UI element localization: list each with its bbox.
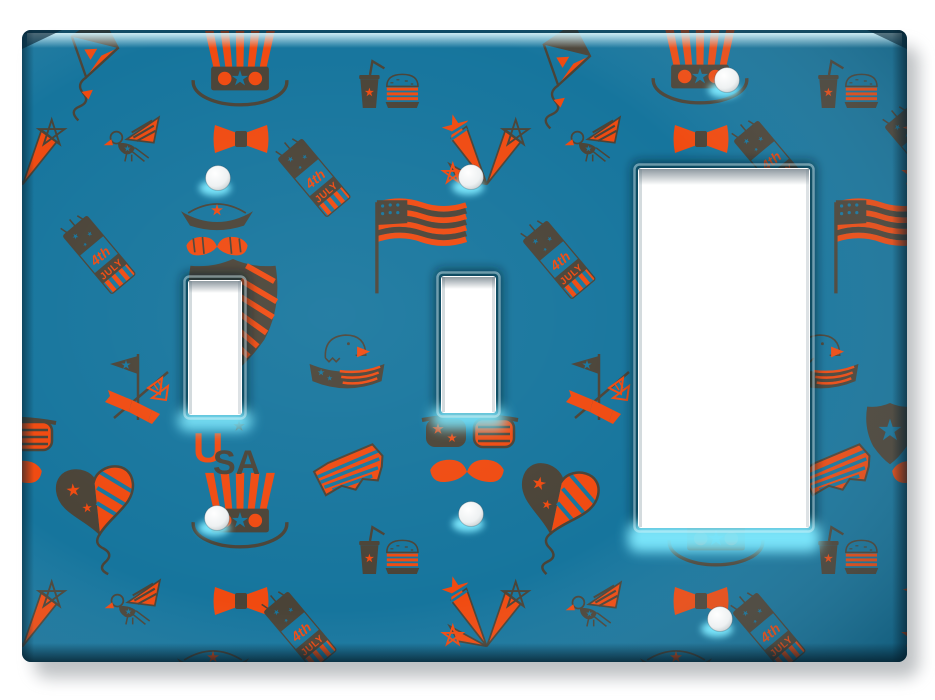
rocker-opening <box>628 161 820 552</box>
toggle-hole <box>188 280 242 415</box>
toggle-hole <box>441 276 496 413</box>
wall-plate <box>0 11 935 700</box>
toggle-opening <box>431 269 506 429</box>
rocker-hole <box>638 168 810 528</box>
toggle-opening <box>178 273 252 431</box>
switch-plate-product-image: 4th JULY <box>0 0 935 700</box>
switch-plate-scene: 4th JULY <box>0 0 935 700</box>
